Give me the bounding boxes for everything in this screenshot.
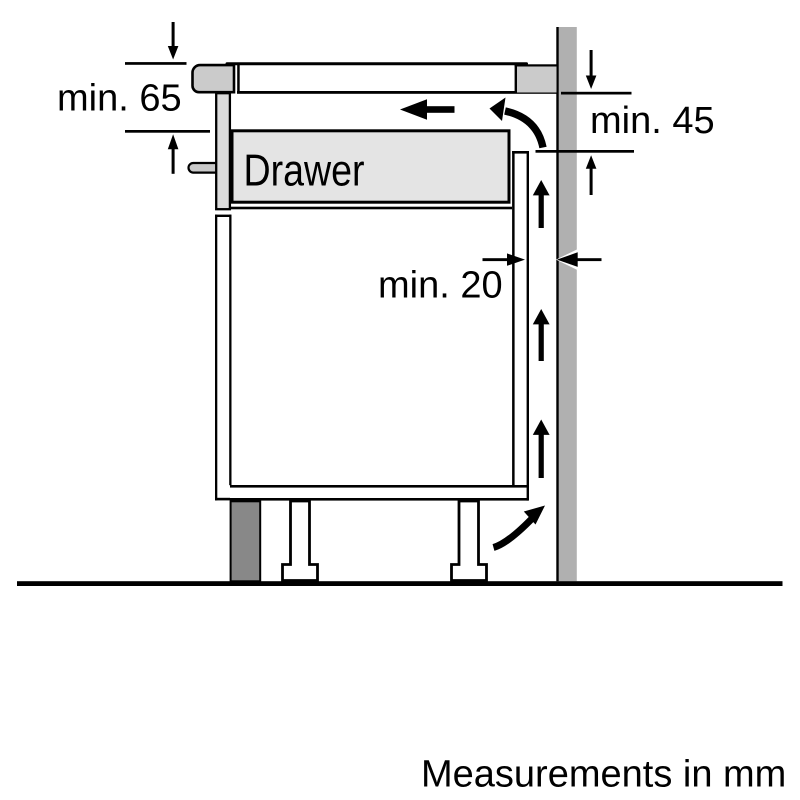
svg-text:min. 45: min. 45 xyxy=(590,100,715,142)
svg-text:min. 65: min. 65 xyxy=(57,78,182,120)
svg-text:min. 20: min. 20 xyxy=(378,265,503,307)
svg-text:Measurements in mm: Measurements in mm xyxy=(421,753,786,795)
svg-text:Drawer: Drawer xyxy=(244,147,365,196)
